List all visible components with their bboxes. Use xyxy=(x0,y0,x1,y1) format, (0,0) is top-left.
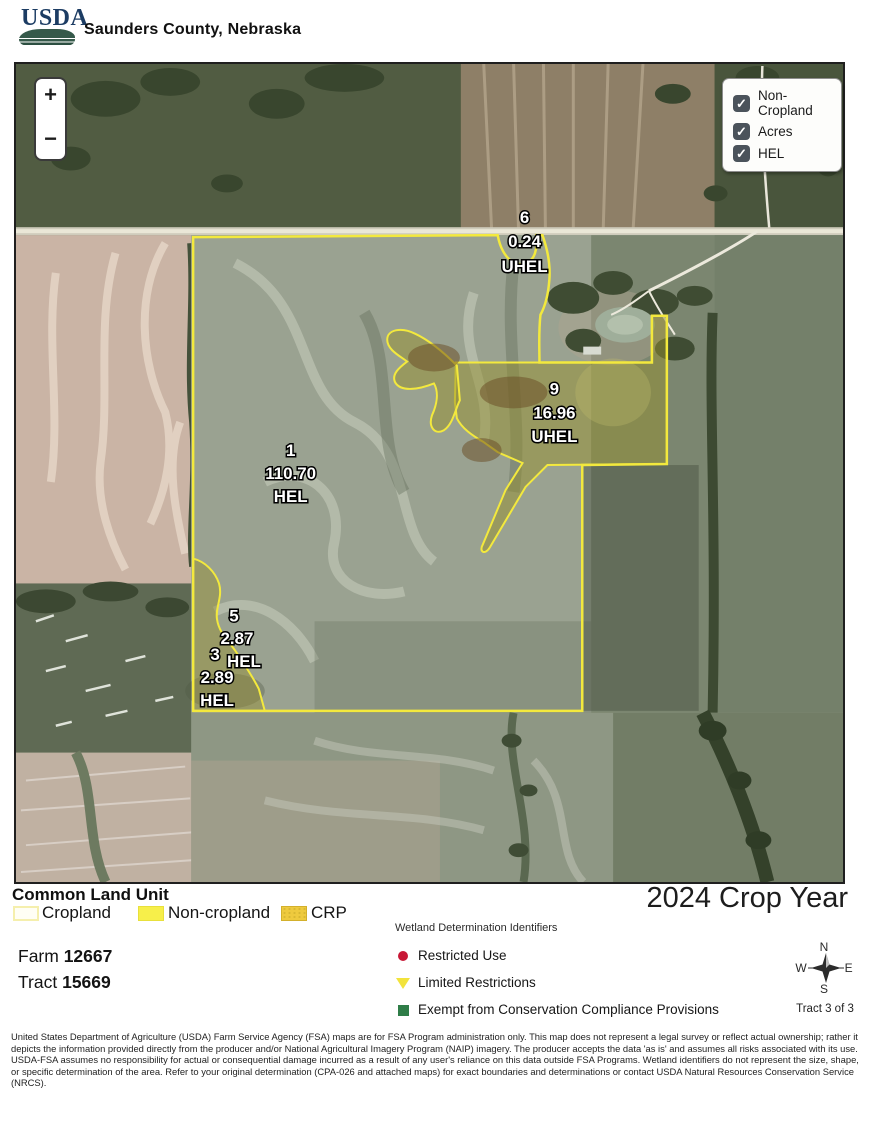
terrain-east-area xyxy=(547,231,843,713)
checkbox-checked-icon[interactable]: ✓ xyxy=(733,123,750,140)
compass-south-label: S xyxy=(791,983,857,995)
red-circle-icon xyxy=(398,951,408,961)
field-label-1-id: 1 xyxy=(286,441,295,460)
farm-number-line: Farm 12667 xyxy=(18,946,112,967)
layer-checkbox-non-cropland[interactable]: ✓ Non-Cropland xyxy=(733,88,831,118)
field-label-9-hel: UHEL xyxy=(531,427,577,446)
compass-star-icon xyxy=(808,953,844,983)
terrain-left-column xyxy=(16,235,194,882)
zoom-in-button[interactable]: + xyxy=(44,85,57,105)
crp-swatch-icon xyxy=(281,906,307,921)
field-label-9-acres: 16.96 xyxy=(533,403,575,422)
tract-page-indicator: Tract 3 of 3 xyxy=(780,1003,870,1015)
field-label-9-id: 9 xyxy=(550,379,559,398)
layer-label: Non-Cropland xyxy=(758,88,831,118)
terrain-top-band xyxy=(16,64,843,231)
wetland-item-label: Limited Restrictions xyxy=(418,975,536,990)
field-label-3-id: 3 xyxy=(210,645,219,664)
layer-label: HEL xyxy=(758,146,784,161)
field-label-1-acres: 110.70 xyxy=(265,464,316,483)
field-label-6-acres: 0.24 xyxy=(508,232,542,251)
field-label-5-id: 5 xyxy=(229,606,238,625)
farm-label: Farm xyxy=(18,946,59,966)
wetland-item-limited: Limited Restrictions xyxy=(396,975,726,993)
clu-legend: Cropland Non-cropland CRP xyxy=(12,903,392,925)
wetland-item-label: Exempt from Conservation Compliance Prov… xyxy=(418,1002,719,1017)
tract-label: Tract xyxy=(18,972,57,992)
wetland-item-exempt: Exempt from Conservation Compliance Prov… xyxy=(396,1002,726,1020)
usda-logo: USDA xyxy=(19,5,77,49)
usda-logo-text: USDA xyxy=(21,5,88,32)
usda-swoosh-icon xyxy=(19,29,75,45)
cropland-swatch-icon xyxy=(13,906,39,921)
fsa-map-document: USDA Saunders County, Nebraska xyxy=(0,0,877,1135)
tract-number: 15669 xyxy=(62,972,111,992)
field-label-3-acres: 2.89 xyxy=(201,668,234,687)
crp-label: CRP xyxy=(311,903,347,923)
green-square-icon xyxy=(398,1005,409,1016)
non-cropland-swatch-icon xyxy=(138,906,164,921)
disclaimer-text: United States Department of Agriculture … xyxy=(11,1031,863,1089)
checkbox-checked-icon[interactable]: ✓ xyxy=(733,95,750,112)
compass-north-label: N xyxy=(791,941,857,953)
map-zoom-control: + − xyxy=(34,77,67,161)
field-label-3-hel: HEL xyxy=(200,691,234,710)
field-label-1-hel: HEL xyxy=(274,487,308,506)
field-label-6-hel: UHEL xyxy=(502,257,548,276)
wetland-legend-title: Wetland Determination Identifiers xyxy=(395,922,557,934)
wetland-item-label: Restricted Use xyxy=(418,948,507,963)
terrain-bottom-band xyxy=(191,713,843,882)
compass-east-label: E xyxy=(845,962,853,974)
field-label-6-id: 6 xyxy=(520,208,529,227)
aerial-imagery: 6 0.24 UHEL 9 16.96 UHEL 1 110.70 HEL 5 … xyxy=(16,64,843,882)
crop-year-title: 2024 Crop Year xyxy=(646,882,848,915)
zoom-out-button[interactable]: − xyxy=(44,129,57,149)
wetland-item-restricted: Restricted Use xyxy=(396,948,726,966)
cropland-label: Cropland xyxy=(42,903,111,923)
non-cropland-label: Non-cropland xyxy=(168,903,270,923)
map-layer-panel: ✓ Non-Cropland ✓ Acres ✓ HEL xyxy=(722,78,842,172)
layer-label: Acres xyxy=(758,124,793,139)
layer-checkbox-hel[interactable]: ✓ HEL xyxy=(733,145,831,162)
map-canvas[interactable]: 6 0.24 UHEL 9 16.96 UHEL 1 110.70 HEL 5 … xyxy=(14,62,845,884)
clu-legend-title: Common Land Unit xyxy=(12,885,169,905)
compass-rose: N W E S xyxy=(791,941,857,995)
farm-number: 12667 xyxy=(64,946,113,966)
yellow-triangle-icon xyxy=(396,978,410,989)
page-title: Saunders County, Nebraska xyxy=(84,21,301,39)
layer-checkbox-acres[interactable]: ✓ Acres xyxy=(733,123,831,140)
field-label-5-acres: 2.87 xyxy=(220,629,253,648)
tract-number-line: Tract 15669 xyxy=(18,972,111,993)
farm-building xyxy=(583,347,601,355)
checkbox-checked-icon[interactable]: ✓ xyxy=(733,145,750,162)
compass-west-label: W xyxy=(795,962,806,974)
